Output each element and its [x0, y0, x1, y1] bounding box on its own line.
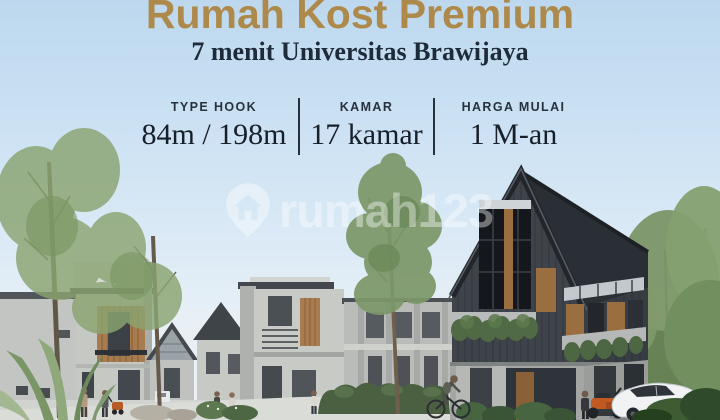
info-label-kamar: KAMAR: [300, 100, 433, 114]
info-row: TYPE HOOK 84m / 198m KAMAR 17 kamar HARG…: [130, 96, 592, 155]
info-col-type: TYPE HOOK 84m / 198m: [130, 96, 298, 155]
poster: rumah123 Rumah Kost Premium 7 menit Univ…: [0, 0, 720, 420]
info-col-harga: HARGA MULAI 1 M-an: [435, 96, 592, 155]
hedge: [318, 383, 450, 414]
info-value-harga: 1 M-an: [435, 117, 592, 153]
info-label-type: TYPE HOOK: [130, 100, 298, 114]
dark-gable-house: [449, 169, 648, 420]
info-col-kamar: KAMAR 17 kamar: [300, 96, 433, 155]
poster-title: Rumah Kost Premium: [0, 0, 720, 36]
info-value-kamar: 17 kamar: [300, 117, 433, 153]
info-label-harga: HARGA MULAI: [435, 100, 592, 114]
info-value-type: 84m / 198m: [130, 117, 298, 153]
header: Rumah Kost Premium 7 menit Universitas B…: [0, 0, 720, 67]
poster-subtitle: 7 menit Universitas Brawijaya: [0, 36, 720, 67]
